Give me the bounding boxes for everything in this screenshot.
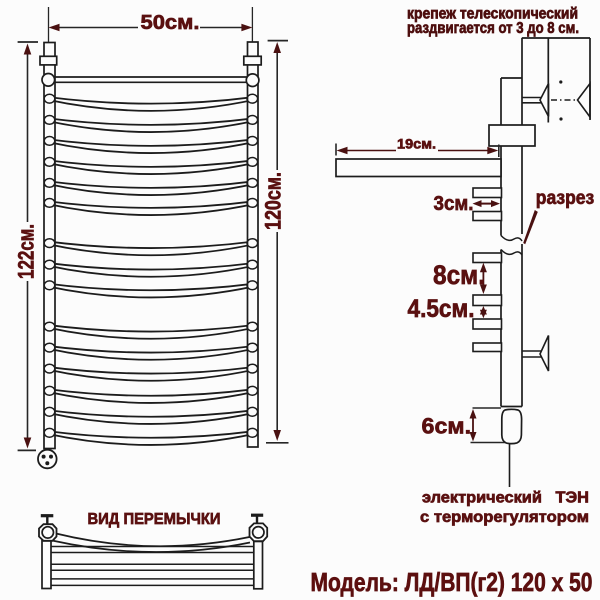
svg-text:3см.: 3см. [434,192,474,215]
svg-text:8см.: 8см. [433,260,485,290]
svg-text:50см.: 50см. [141,12,200,34]
svg-text:4.5см.: 4.5см. [408,295,475,323]
svg-text:Модель: ЛД/ВП(г2) 120 х 50: Модель: ЛД/ВП(г2) 120 х 50 [311,567,593,597]
svg-text:120см.: 120см. [261,172,286,230]
svg-text:раздвигается от 3 до 8 см.: раздвигается от 3 до 8 см. [407,20,579,37]
svg-text:6см.: 6см. [422,414,472,439]
svg-text:19см.: 19см. [397,135,436,151]
svg-text:122см.: 122см. [14,224,39,279]
svg-text:с терморегулятором: с терморегулятором [420,509,589,526]
svg-text:ВИД ПЕРЕМЫЧКИ: ВИД ПЕРЕМЫЧКИ [88,511,221,528]
svg-text:электрический ТЭН: электрический ТЭН [422,490,589,507]
svg-text:разрез: разрез [536,188,595,209]
